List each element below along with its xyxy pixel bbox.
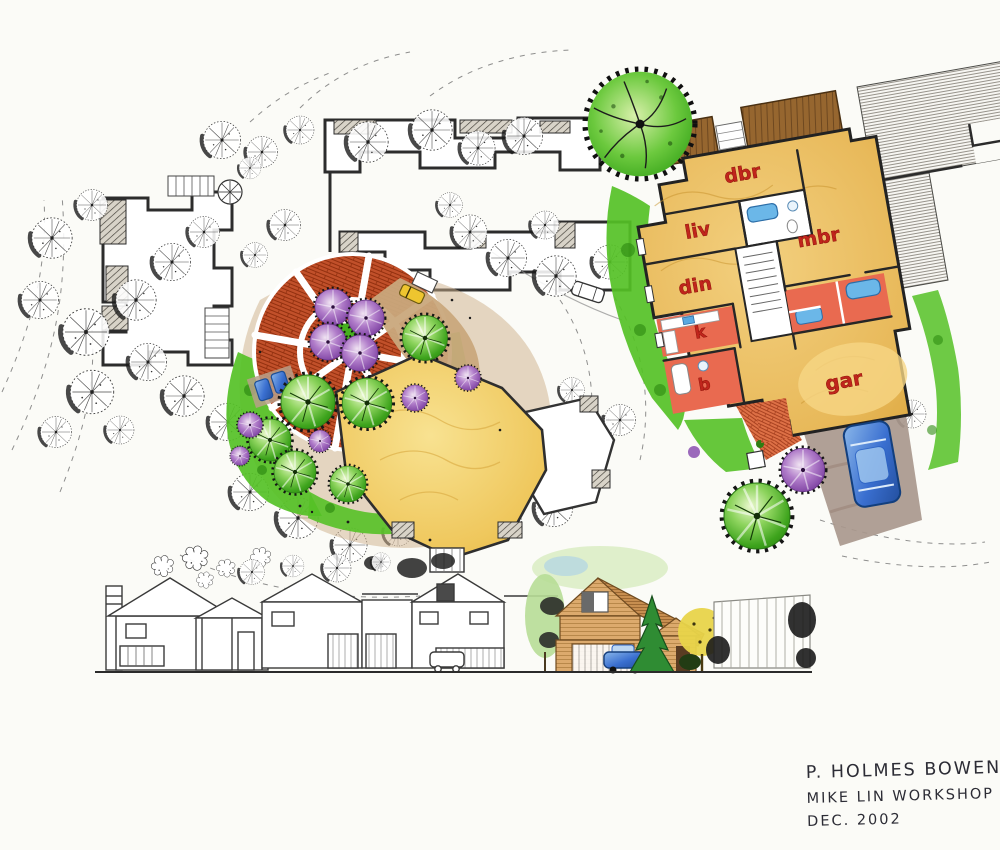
- deciduous-tree-icon: [281, 555, 304, 577]
- purple-tree-icon: [314, 288, 353, 327]
- deciduous-tree-icon: [241, 243, 267, 268]
- walk-pad: [747, 451, 766, 470]
- purple-tree-icon: [309, 323, 348, 362]
- deciduous-tree-icon: [436, 193, 462, 218]
- deciduous-tree-icon: [238, 560, 264, 585]
- signature-line-2: MIKE LIN WORKSHOP: [806, 786, 994, 807]
- parked-car-outline: [430, 652, 464, 672]
- purple-tree-icon: [341, 334, 380, 373]
- deciduous-tree-icon: [322, 554, 351, 582]
- deciduous-tree-icon: [39, 417, 71, 448]
- site-plan-drawing: dbr liv din k b mbr gar: [0, 0, 1000, 850]
- purple-tree-icon: [230, 446, 250, 466]
- deciduous-tree-icon: [285, 116, 314, 144]
- deciduous-tree-icon: [68, 370, 113, 413]
- deciduous-tree-icon: [202, 121, 241, 158]
- deciduous-tree-icon: [459, 131, 495, 165]
- deciduous-tree-icon: [371, 553, 390, 572]
- fence: [706, 595, 816, 668]
- purple-tree-icon: [455, 365, 481, 391]
- deciduous-tree-icon: [268, 210, 300, 241]
- deciduous-tree-icon: [410, 110, 452, 150]
- deciduous-tree-icon: [20, 281, 59, 318]
- deciduous-tree-icon: [162, 376, 204, 416]
- entry-inside: [754, 398, 792, 443]
- cloud-tree-icon: [182, 546, 208, 570]
- elevation-house-1: [106, 578, 268, 670]
- deciduous-tree-icon: [30, 218, 72, 258]
- scanned-site-plan: dbr liv din k b mbr gar: [0, 0, 1000, 850]
- purple-tree-icon: [780, 447, 827, 494]
- purple-tree-icon: [347, 299, 386, 338]
- cloud-tree-icon: [216, 559, 235, 577]
- deciduous-tree-icon: [451, 215, 487, 249]
- deciduous-tree-icon: [238, 157, 261, 179]
- purple-tree-icon: [237, 412, 263, 438]
- deciduous-tree-icon: [61, 309, 110, 356]
- signature-line-3: DEC. 2002: [807, 812, 902, 830]
- spiral-stair: [218, 180, 242, 204]
- deciduous-tree-icon: [530, 211, 559, 239]
- signature-block: P. HOLMES BOWEN MIKE LIN WORKSHOP DEC. 2…: [806, 758, 1000, 830]
- elevation-house-2: [262, 574, 418, 668]
- signature-line-1: P. HOLMES BOWEN: [806, 758, 1000, 783]
- cloud-tree-icon: [196, 572, 213, 588]
- green-tree-icon: [722, 481, 792, 551]
- flower-shrub: [688, 446, 700, 458]
- room-label-liv: liv: [683, 218, 712, 244]
- cloud-tree-icon: [151, 556, 173, 577]
- purple-tree-icon: [308, 429, 331, 452]
- deciduous-tree-icon: [105, 416, 134, 444]
- deciduous-tree-icon: [75, 190, 107, 221]
- purple-tree-icon: [401, 384, 429, 412]
